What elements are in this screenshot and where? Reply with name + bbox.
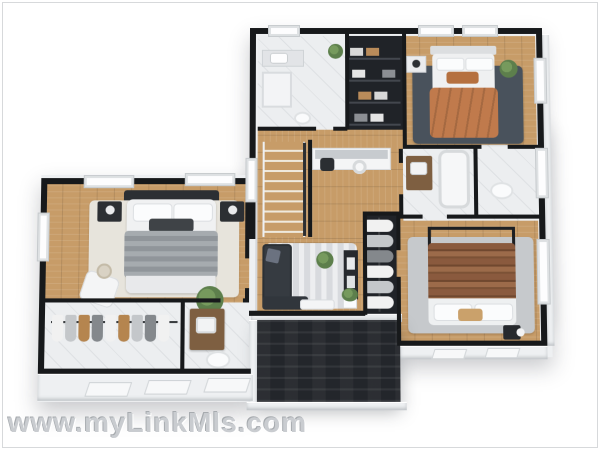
bedroom2-pillow	[465, 58, 493, 71]
bedroom3-canopy-frame	[428, 227, 515, 230]
window	[84, 175, 135, 188]
hanging-clothes	[52, 315, 181, 346]
window	[185, 173, 236, 186]
clothes-item	[118, 315, 130, 342]
bedroom2-lamp	[412, 60, 420, 68]
hall-decor-dark	[320, 158, 334, 171]
eave-window	[84, 382, 132, 397]
bath2-tub	[438, 150, 470, 209]
bath1-plant	[328, 44, 343, 59]
wall	[363, 212, 401, 216]
wall	[399, 149, 403, 163]
eave-window	[431, 349, 467, 359]
bedroom3-duvet	[428, 243, 516, 302]
den-planter-plant	[342, 288, 358, 301]
bedroom2-throw-pillow	[446, 72, 478, 84]
window	[268, 25, 300, 37]
wall	[363, 212, 368, 315]
wall	[397, 341, 547, 346]
towels	[374, 92, 387, 100]
porch-roof	[257, 320, 401, 403]
window	[536, 239, 550, 305]
wall	[308, 140, 312, 237]
towels	[370, 114, 383, 122]
window	[535, 148, 549, 199]
bedroom2-duvet	[430, 88, 499, 138]
master-bath-toilet	[206, 351, 231, 369]
clothes-item	[366, 296, 394, 308]
clothes-item	[366, 250, 393, 262]
wall	[43, 298, 220, 302]
den-table	[300, 299, 335, 309]
clothes-item	[52, 315, 64, 342]
wall	[180, 302, 185, 370]
bath2-sink	[410, 162, 427, 175]
wc-toilet	[490, 182, 514, 199]
wall	[258, 127, 316, 131]
window	[245, 158, 257, 202]
clothes-item	[92, 315, 104, 342]
eave-window	[203, 378, 251, 393]
bedroom3-eave	[400, 346, 547, 359]
wall	[249, 28, 256, 239]
clothes-item	[366, 235, 393, 247]
den-plant	[316, 251, 333, 268]
window	[418, 25, 454, 37]
window	[37, 213, 50, 262]
bath1-sink	[270, 53, 288, 64]
clothes-item	[366, 266, 394, 278]
towels	[352, 70, 365, 78]
wall	[38, 369, 251, 374]
wall	[447, 215, 541, 219]
wall	[396, 212, 400, 251]
bedroom2-pillow	[436, 58, 464, 71]
wall	[249, 311, 365, 316]
clothes-item	[105, 315, 117, 342]
master-lamp	[228, 205, 237, 214]
clothes-item	[131, 315, 143, 342]
towels	[354, 114, 367, 122]
closet3-clothes	[366, 220, 395, 314]
bedroom3-speaker-cone	[516, 328, 524, 336]
wall	[245, 288, 249, 302]
master-lamp	[106, 205, 115, 214]
hall-basket	[352, 160, 366, 174]
bath1-shower	[262, 72, 292, 108]
clothes-item	[366, 220, 393, 232]
clothes-item	[78, 315, 90, 342]
window	[462, 25, 498, 37]
clothes-item	[65, 315, 77, 342]
eave-window	[144, 380, 192, 395]
clothes-item	[158, 315, 169, 342]
towels	[358, 92, 371, 100]
eave-window	[485, 348, 521, 358]
den-console-art	[347, 257, 355, 269]
towels	[366, 48, 379, 56]
master-bath-sink	[196, 317, 217, 334]
bedroom2-plant	[499, 60, 517, 78]
towels	[350, 48, 363, 56]
den-sofa-pillow	[265, 248, 281, 264]
shelf	[347, 80, 400, 82]
shelf	[347, 102, 400, 104]
staircase	[262, 142, 305, 237]
wall	[403, 145, 482, 149]
window	[533, 58, 547, 104]
towels	[382, 70, 395, 78]
floor-plan-render	[0, 0, 600, 437]
clothes-item	[145, 315, 157, 342]
shelf	[347, 58, 400, 60]
wall	[397, 277, 402, 346]
clothes-item	[366, 281, 394, 293]
watermark: www.myLinkMls.com	[8, 407, 307, 439]
bath1-toilet	[294, 112, 311, 125]
wall	[402, 34, 407, 149]
wall	[473, 149, 478, 219]
den-console-art	[347, 276, 355, 288]
bedroom3-throw-pillow	[458, 309, 483, 321]
shelf	[347, 124, 400, 126]
wall	[345, 34, 349, 130]
stair-railing	[303, 143, 306, 236]
master-bed-duvet	[124, 231, 218, 278]
